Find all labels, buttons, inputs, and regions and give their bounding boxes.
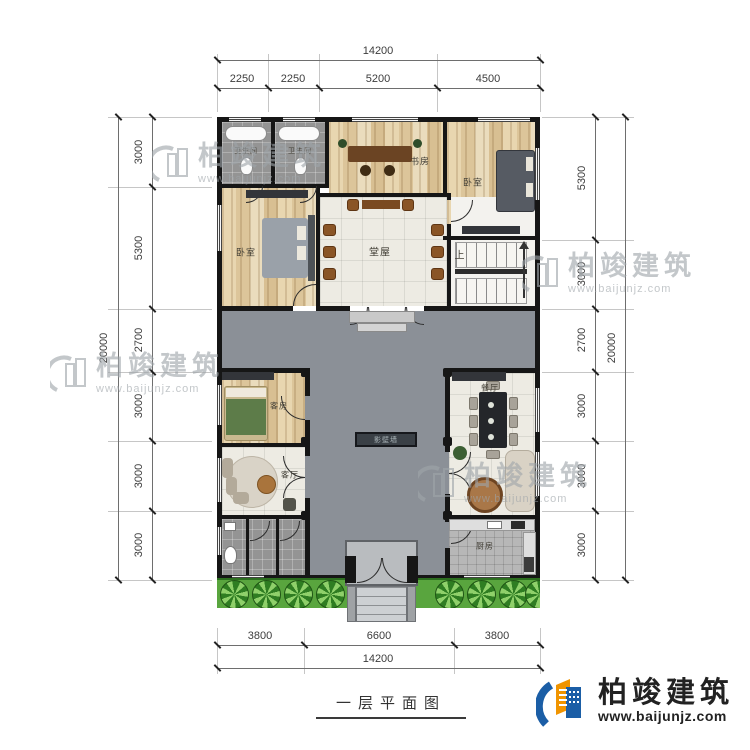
bush: [467, 580, 496, 608]
wall: [246, 519, 249, 575]
bush: [220, 580, 249, 608]
hall-step: [357, 323, 407, 332]
toilet: [294, 157, 307, 175]
porch-post: [301, 511, 310, 520]
wall: [305, 498, 310, 575]
bush: [284, 580, 313, 608]
round-table: [257, 475, 276, 494]
desk: [348, 146, 412, 162]
bush: [316, 580, 345, 608]
dim-bottom-total-line: [217, 668, 540, 669]
dim-top-total-line: [217, 60, 540, 61]
wall: [443, 236, 540, 240]
wall: [217, 306, 293, 311]
entry-steps: [356, 586, 407, 622]
fridge: [524, 557, 534, 572]
sofa-segment: [233, 492, 249, 504]
witness-line: [542, 240, 634, 241]
armchair: [283, 498, 296, 511]
floor-plan-canvas: 14200 2250 2250 5200 4500 3800 6600 3800…: [0, 0, 750, 750]
dim-label-top-total: 14200: [363, 45, 394, 57]
witness-line: [542, 511, 634, 512]
dim-label-right-total: 20000: [606, 333, 618, 364]
dim-label: 6600: [367, 630, 391, 642]
witness-line: [108, 580, 212, 581]
watermark-logo-icon: [50, 352, 90, 396]
witness-line: [319, 54, 320, 112]
window: [478, 117, 530, 122]
toilet: [240, 157, 253, 175]
stove: [511, 521, 525, 529]
toilet: [224, 546, 237, 564]
dim-label: 3800: [248, 630, 272, 642]
wall: [325, 117, 329, 188]
wall: [276, 519, 279, 575]
dim-label: 2250: [230, 73, 254, 85]
room-label-hall: 堂屋: [369, 244, 391, 259]
room-label-bathroom-left: 卫生间: [234, 146, 258, 156]
gate-post: [407, 556, 418, 583]
entry-step-jamb: [347, 586, 356, 622]
wall: [271, 117, 275, 188]
screen-wall: 影壁墙: [355, 432, 417, 447]
dining-chair: [509, 397, 518, 410]
watermark: 柏竣建筑www.baijunjz.com: [50, 352, 224, 396]
dim-top-seg-line: [217, 88, 540, 89]
witness-line: [437, 54, 438, 112]
witness-line: [542, 441, 634, 442]
bush: [525, 580, 540, 608]
wall: [424, 306, 540, 311]
window: [217, 385, 222, 425]
dim-label: 2700: [576, 328, 588, 352]
witness-line: [542, 580, 634, 581]
wall: [316, 306, 350, 311]
hall-chair: [323, 246, 336, 258]
stair-flight: [455, 242, 527, 268]
dim-label: 3000: [133, 464, 145, 488]
dim-label-left-total: 20000: [98, 333, 110, 364]
wardrobe: [222, 372, 274, 380]
witness-line: [542, 309, 634, 310]
porch-post: [301, 368, 310, 377]
dim-right-total-line: [625, 117, 626, 580]
witness-line: [542, 117, 634, 118]
dim-label: 5300: [576, 166, 588, 190]
porch-post: [301, 437, 310, 446]
stair-arrow-head: [519, 241, 529, 249]
witness-line: [108, 309, 212, 310]
hall-chair: [431, 246, 444, 258]
wall: [445, 548, 450, 575]
witness-line: [108, 372, 212, 373]
wall: [316, 193, 451, 197]
watermark: 柏竣建筑www.baijunjz.com: [522, 252, 696, 296]
watermark-url: www.baijunjz.com: [96, 383, 224, 395]
tv-cabinet: [246, 190, 308, 198]
window: [217, 527, 222, 555]
dim-label: 4500: [476, 73, 500, 85]
dim-left-total-line: [118, 117, 119, 580]
sofa-segment: [222, 458, 233, 478]
dim-label-bottom-total: 14200: [363, 653, 394, 665]
window: [352, 117, 418, 122]
desk-chair: [384, 165, 395, 176]
hall-chair: [431, 224, 444, 236]
dim-label: 3000: [576, 394, 588, 418]
room-label-guest-room: 客房: [270, 401, 288, 412]
hall-chair: [402, 199, 414, 211]
dim-label: 3000: [133, 140, 145, 164]
dining-chair: [486, 450, 500, 459]
room-label-stairs-up: 上: [455, 247, 466, 262]
window: [229, 117, 261, 122]
wall: [447, 193, 451, 200]
dining-chair: [509, 433, 518, 446]
watermark-logo-icon: [152, 142, 192, 186]
dim-label: 5200: [366, 73, 390, 85]
plant: [453, 446, 467, 460]
guest-bed-blanket: [226, 399, 266, 435]
dim-label: 5300: [133, 236, 145, 260]
witness-line: [268, 54, 269, 112]
dim-label: 3000: [576, 262, 588, 286]
porch-post: [443, 437, 452, 446]
stair-arrow: [523, 248, 525, 298]
bathtub: [278, 126, 320, 141]
dim-label: 2250: [281, 73, 305, 85]
plant: [338, 139, 347, 148]
dim-label: 3000: [576, 533, 588, 557]
pillow: [526, 183, 533, 197]
brand-name: 柏竣建筑: [598, 678, 734, 708]
dim-label: 3000: [576, 464, 588, 488]
kitchen-sink: [487, 521, 502, 529]
plate: [488, 418, 494, 424]
round-rug: [467, 477, 503, 513]
headboard: [308, 215, 315, 281]
dim-label: 3000: [133, 533, 145, 557]
dining-chair: [469, 433, 478, 446]
pillow: [526, 157, 533, 171]
dining-chair: [469, 415, 478, 428]
dim-label: 2700: [133, 328, 145, 352]
dim-label: 3000: [133, 394, 145, 418]
room-label-study: 书房: [410, 155, 430, 168]
stair-rail: [455, 269, 527, 274]
bush: [499, 580, 528, 608]
hall-chair: [431, 268, 444, 280]
dim-label: 3800: [485, 630, 509, 642]
guest-bed-pillow: [226, 388, 266, 397]
witness-line: [542, 372, 634, 373]
hall-chair: [347, 199, 359, 211]
wall: [443, 117, 447, 197]
dim-bottom-seg-line: [217, 645, 540, 646]
sideboard: [452, 372, 506, 381]
bush: [435, 580, 464, 608]
window: [283, 117, 315, 122]
pillow: [297, 246, 306, 260]
plate: [488, 434, 494, 440]
bush: [252, 580, 281, 608]
entry-step-jamb: [407, 586, 416, 622]
hall-step: [349, 311, 415, 323]
room-label-kitchen: 厨房: [476, 541, 494, 552]
wall: [217, 515, 305, 519]
watermark-name: 柏竣建筑: [96, 353, 224, 380]
window: [535, 452, 540, 496]
room-label-living-room: 客厅: [281, 470, 299, 481]
brand-logo: 柏竣建筑 www.baijunjz.com: [536, 672, 734, 730]
hall-chair: [323, 224, 336, 236]
pillow: [297, 226, 306, 240]
sofa: [505, 450, 535, 512]
brand-logo-icon: [536, 672, 590, 730]
dining-chair: [469, 397, 478, 410]
hall-chair: [323, 268, 336, 280]
witness-line: [108, 511, 212, 512]
desk-chair: [360, 165, 371, 176]
plant: [413, 139, 422, 148]
brand-url: www.baijunjz.com: [598, 708, 734, 724]
room-label-bedroom-top: 卧室: [463, 176, 483, 189]
gate-post: [345, 556, 356, 583]
hall-table: [362, 200, 400, 209]
window: [217, 205, 222, 251]
dining-chair: [509, 415, 518, 428]
witness-line: [108, 117, 212, 118]
window: [535, 148, 540, 200]
witness-line: [108, 441, 212, 442]
porch-post: [443, 368, 452, 377]
stair-flight: [455, 278, 527, 304]
wall: [217, 443, 305, 447]
room-label-bathroom-right: 卫生间: [288, 146, 312, 156]
window: [535, 388, 540, 432]
wall: [316, 188, 320, 311]
sink: [224, 522, 236, 531]
bathtub: [225, 126, 267, 141]
drawing-title: 一层平面图: [316, 692, 466, 719]
witness-line: [108, 187, 212, 188]
room-label-bedroom-left: 卧室: [236, 246, 256, 259]
room-label-dining-room: 餐厅: [481, 383, 499, 394]
screen-wall-label: 影壁墙: [374, 435, 398, 445]
plate: [488, 402, 494, 408]
dresser: [462, 226, 520, 234]
